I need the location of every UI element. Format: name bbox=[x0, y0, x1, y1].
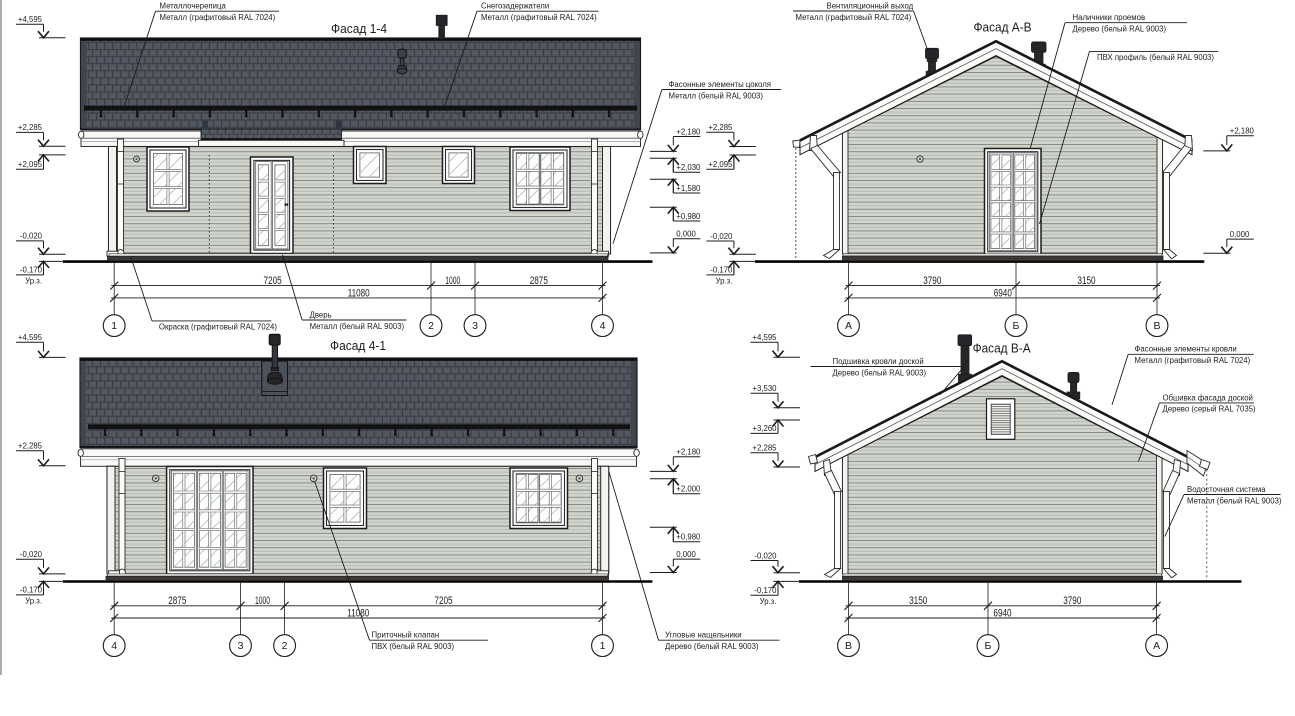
svg-text:Б: Б bbox=[985, 640, 992, 652]
svg-text:+2,285: +2,285 bbox=[18, 123, 43, 132]
svg-text:А: А bbox=[845, 320, 852, 332]
svg-text:Фасонные элементы кровли: Фасонные элементы кровли bbox=[1135, 345, 1237, 354]
svg-text:+2,285: +2,285 bbox=[708, 123, 733, 132]
svg-text:Обшивка фасада доской: Обшивка фасада доской bbox=[1163, 393, 1253, 402]
svg-text:+3,260: +3,260 bbox=[752, 424, 777, 433]
svg-text:Фасад 1-4: Фасад 1-4 bbox=[331, 21, 387, 36]
svg-text:Металл (графитовый RAL 7024): Металл (графитовый RAL 7024) bbox=[796, 13, 912, 22]
svg-text:Дверь: Дверь bbox=[310, 310, 332, 319]
svg-text:-0,170: -0,170 bbox=[20, 586, 43, 595]
svg-text:2: 2 bbox=[282, 640, 288, 652]
svg-text:-0,170: -0,170 bbox=[754, 586, 777, 595]
svg-text:Металл (графитовый RAL 7024): Металл (графитовый RAL 7024) bbox=[160, 13, 276, 22]
svg-text:Дерево (серый RAL 7035): Дерево (серый RAL 7035) bbox=[1163, 405, 1257, 414]
svg-text:Фасонные элементы цоколя: Фасонные элементы цоколя bbox=[669, 80, 772, 89]
svg-text:+2,285: +2,285 bbox=[752, 444, 777, 453]
svg-text:Ур.з.: Ур.з. bbox=[716, 277, 733, 286]
svg-text:4: 4 bbox=[111, 640, 117, 652]
svg-text:-0,170: -0,170 bbox=[710, 266, 733, 275]
svg-text:1: 1 bbox=[111, 320, 117, 332]
svg-text:Фасад 4-1: Фасад 4-1 bbox=[330, 338, 386, 353]
svg-text:Дерево (белый RAL 9003): Дерево (белый RAL 9003) bbox=[665, 642, 759, 651]
svg-text:+4,595: +4,595 bbox=[18, 15, 43, 24]
svg-text:11080: 11080 bbox=[348, 287, 370, 299]
svg-text:+2,285: +2,285 bbox=[18, 442, 43, 451]
svg-text:Подшивка кровли доской: Подшивка кровли доской bbox=[833, 357, 924, 366]
svg-text:Металл (графитовый RAL 7024): Металл (графитовый RAL 7024) bbox=[1135, 356, 1251, 365]
svg-text:Ур.з.: Ур.з. bbox=[760, 597, 777, 606]
svg-text:3790: 3790 bbox=[923, 275, 941, 287]
svg-text:3790: 3790 bbox=[1063, 595, 1081, 607]
svg-text:4: 4 bbox=[600, 320, 606, 332]
svg-text:1000: 1000 bbox=[255, 595, 270, 607]
svg-text:+2,000: +2,000 bbox=[676, 485, 701, 494]
svg-text:+2,180: +2,180 bbox=[676, 448, 701, 457]
svg-text:+1,580: +1,580 bbox=[676, 184, 701, 193]
svg-text:Фасад А-В: Фасад А-В bbox=[974, 20, 1032, 35]
svg-text:6940: 6940 bbox=[994, 287, 1012, 299]
svg-text:Металл (белый RAL 9003): Металл (белый RAL 9003) bbox=[669, 91, 764, 100]
svg-text:Окраска (графитовый RAL 7024): Окраска (графитовый RAL 7024) bbox=[159, 323, 277, 332]
svg-text:Вентиляционный выход: Вентиляционный выход bbox=[827, 1, 914, 10]
svg-text:-0,020: -0,020 bbox=[20, 550, 43, 559]
svg-text:2: 2 bbox=[428, 320, 434, 332]
svg-text:Дерево (белый RAL 9003): Дерево (белый RAL 9003) bbox=[833, 368, 927, 377]
svg-text:2875: 2875 bbox=[530, 275, 548, 287]
svg-text:1000: 1000 bbox=[445, 275, 460, 287]
svg-text:3150: 3150 bbox=[1077, 275, 1095, 287]
svg-text:Водосточная система: Водосточная система bbox=[1187, 485, 1266, 494]
svg-text:+4,595: +4,595 bbox=[18, 333, 43, 342]
svg-text:Металл (графитовый RAL 7024): Металл (графитовый RAL 7024) bbox=[481, 13, 597, 22]
svg-text:В: В bbox=[845, 640, 852, 652]
svg-text:Угловые нащельники: Угловые нащельники bbox=[665, 631, 742, 640]
svg-text:ПВХ (белый RAL 9003): ПВХ (белый RAL 9003) bbox=[372, 642, 455, 651]
svg-text:Фасад В-А: Фасад В-А bbox=[973, 340, 1031, 355]
svg-text:0,000: 0,000 bbox=[676, 550, 696, 559]
svg-text:ПВХ профиль (белый RAL 9003): ПВХ профиль (белый RAL 9003) bbox=[1097, 53, 1214, 62]
svg-text:Ур.з.: Ур.з. bbox=[25, 597, 42, 606]
svg-text:7205: 7205 bbox=[434, 595, 452, 607]
svg-text:В: В bbox=[1153, 320, 1160, 332]
svg-text:+3,530: +3,530 bbox=[752, 384, 777, 393]
svg-text:7205: 7205 bbox=[264, 275, 282, 287]
svg-text:Наличники проемов: Наличники проемов bbox=[1073, 13, 1146, 22]
svg-text:+0,980: +0,980 bbox=[676, 533, 701, 542]
svg-text:1: 1 bbox=[600, 640, 606, 652]
svg-text:+2,030: +2,030 bbox=[676, 163, 701, 172]
svg-text:-0,020: -0,020 bbox=[710, 232, 733, 241]
svg-text:-0,020: -0,020 bbox=[20, 232, 43, 241]
svg-text:Металл (белый RAL 9003): Металл (белый RAL 9003) bbox=[1187, 496, 1282, 505]
svg-text:Металлочерепица: Металлочерепица bbox=[160, 2, 227, 11]
svg-text:3: 3 bbox=[472, 320, 478, 332]
svg-text:Металл (белый RAL 9003): Металл (белый RAL 9003) bbox=[310, 322, 405, 331]
svg-text:+0,980: +0,980 bbox=[676, 212, 701, 221]
svg-text:А: А bbox=[1153, 640, 1160, 652]
svg-text:6940: 6940 bbox=[993, 607, 1011, 619]
svg-text:Приточный клапан: Приточный клапан bbox=[372, 631, 440, 640]
svg-text:+2,095: +2,095 bbox=[18, 160, 43, 169]
svg-text:+4,595: +4,595 bbox=[752, 333, 777, 342]
svg-text:+2,180: +2,180 bbox=[1230, 127, 1255, 136]
svg-text:-0,020: -0,020 bbox=[754, 551, 777, 560]
svg-text:Снегозадержатели: Снегозадержатели bbox=[481, 2, 549, 11]
svg-text:0,000: 0,000 bbox=[1230, 230, 1250, 239]
svg-text:3150: 3150 bbox=[909, 595, 927, 607]
svg-text:+2,095: +2,095 bbox=[708, 160, 733, 169]
svg-text:2875: 2875 bbox=[168, 595, 186, 607]
svg-text:11080: 11080 bbox=[347, 607, 369, 619]
svg-text:Ур.з.: Ур.з. bbox=[25, 277, 42, 286]
svg-text:Дерево (белый RAL 9003): Дерево (белый RAL 9003) bbox=[1073, 25, 1167, 34]
svg-text:Б: Б bbox=[1013, 320, 1020, 332]
svg-text:-0,170: -0,170 bbox=[20, 266, 43, 275]
svg-text:0,000: 0,000 bbox=[676, 230, 696, 239]
svg-text:3: 3 bbox=[238, 640, 244, 652]
svg-text:+2,180: +2,180 bbox=[676, 127, 701, 136]
